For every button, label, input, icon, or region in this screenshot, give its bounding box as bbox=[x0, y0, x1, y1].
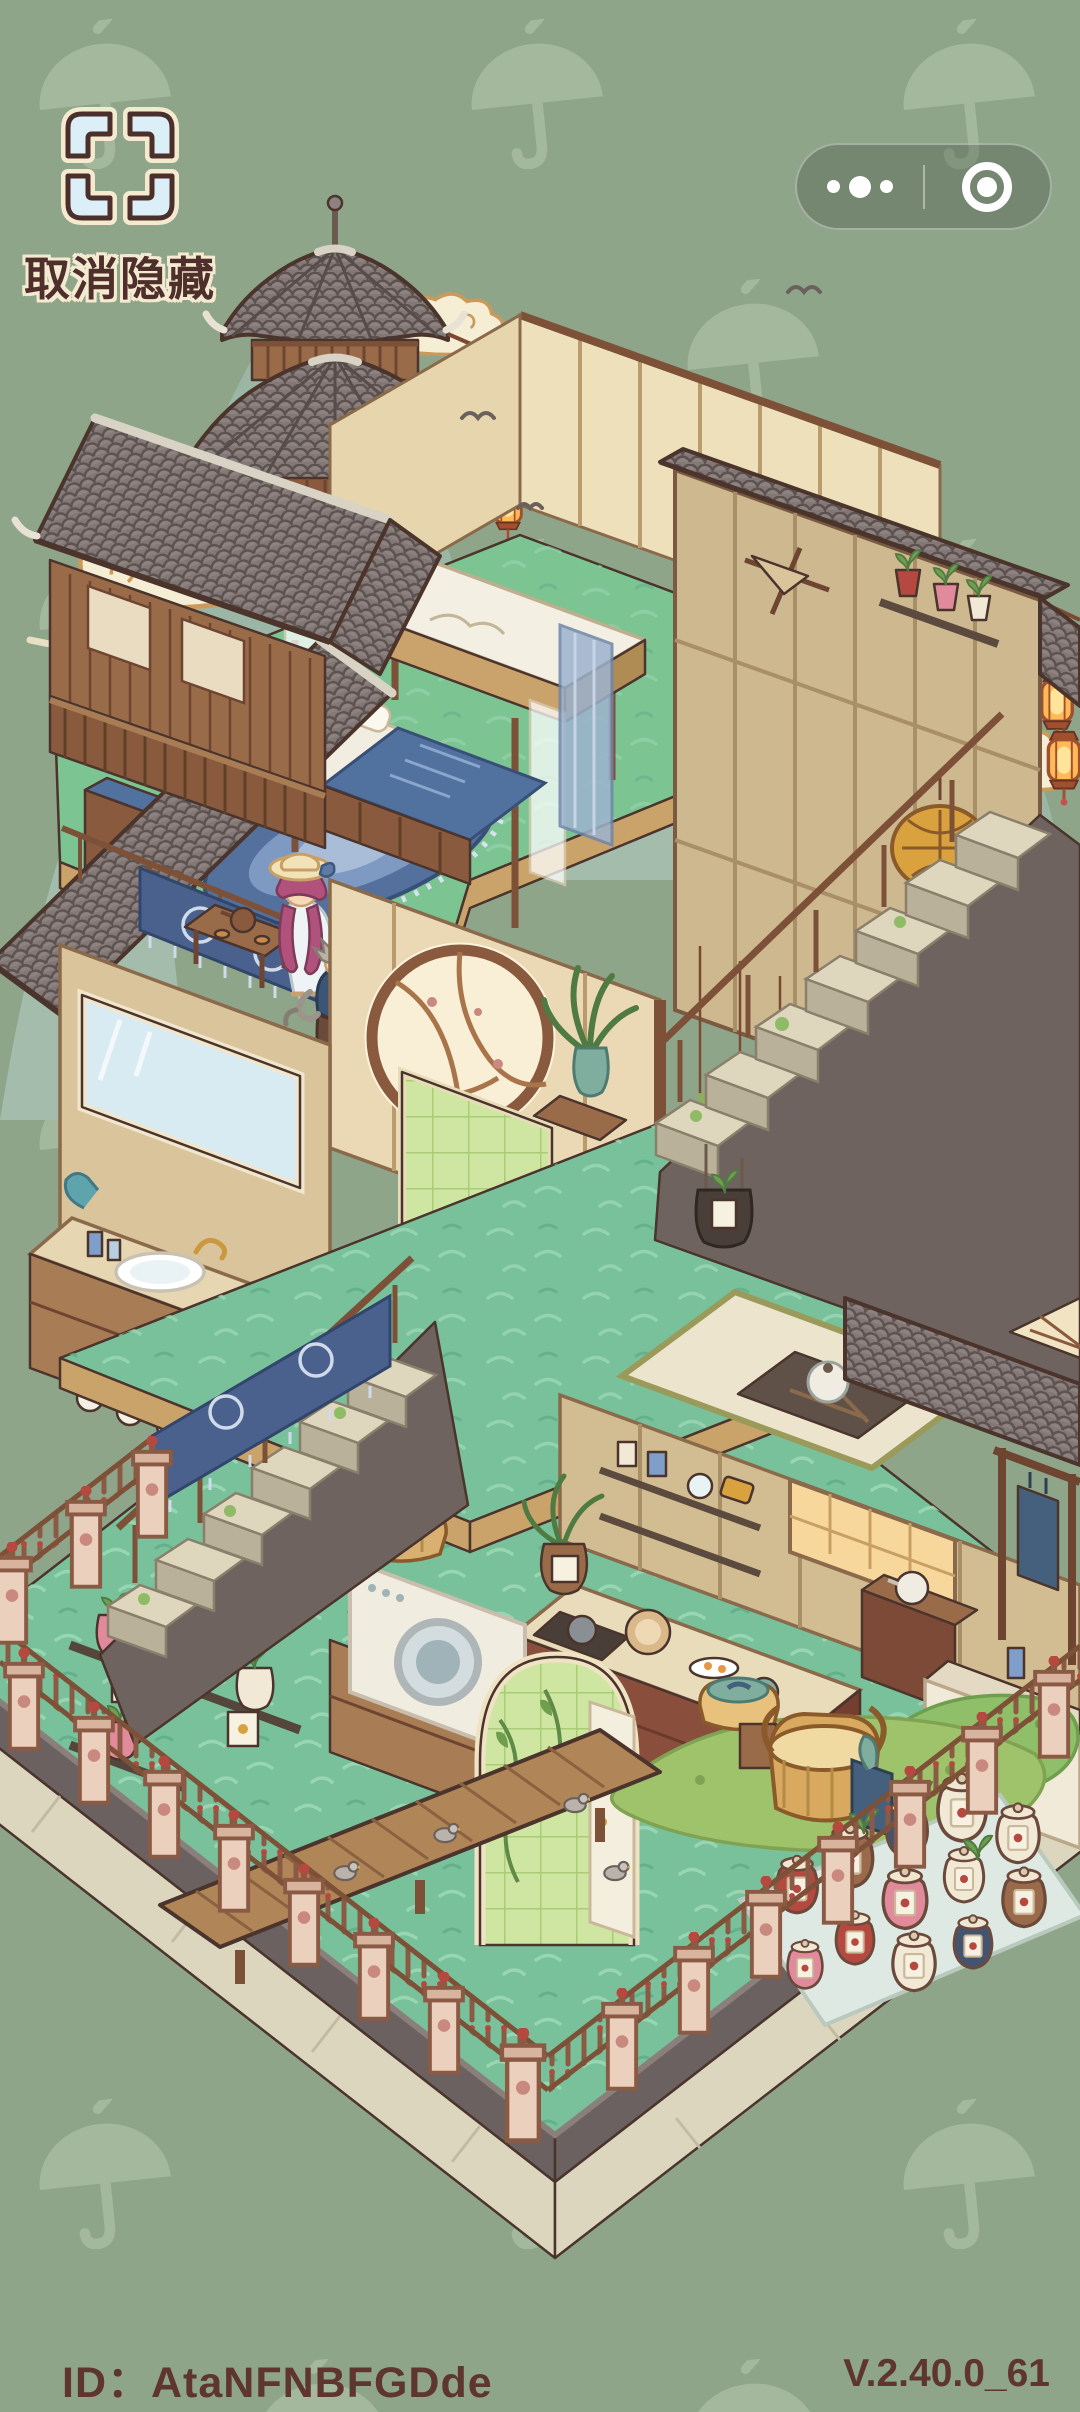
miniprogram-capsule bbox=[795, 143, 1052, 230]
scene-canvas[interactable] bbox=[0, 0, 1080, 2412]
more-dots-icon bbox=[827, 176, 893, 198]
sheer-curtain bbox=[560, 625, 612, 845]
capsule-exit-button[interactable] bbox=[925, 145, 1051, 228]
game-screen: 取消隐藏 ID：AtaNFNBFGDde V.2.40.0_61 bbox=[0, 0, 1080, 2412]
capsule-more-button[interactable] bbox=[797, 145, 923, 228]
player-id-text: ID：AtaNFNBFGDde bbox=[62, 2348, 493, 2410]
cancel-hide-button[interactable]: 取消隐藏 bbox=[22, 100, 218, 309]
version-text: V.2.40.0_61 bbox=[843, 2352, 1050, 2396]
target-circle-icon bbox=[962, 162, 1012, 212]
corner-brackets-icon bbox=[54, 100, 186, 232]
cancel-hide-label: 取消隐藏 bbox=[22, 243, 218, 309]
